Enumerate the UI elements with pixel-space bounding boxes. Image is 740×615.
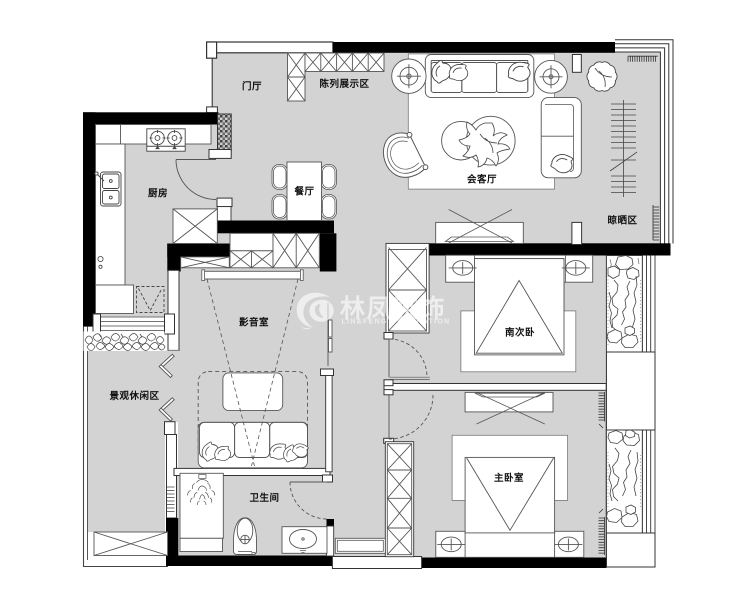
svg-text:景观休闲区: 景观休闲区 (108, 390, 159, 402)
svg-text:门厅: 门厅 (242, 81, 262, 93)
svg-text:会客厅: 会客厅 (467, 174, 497, 186)
svg-text:餐厅: 餐厅 (293, 186, 314, 198)
svg-text:厨房: 厨房 (148, 188, 168, 200)
svg-text:主卧室: 主卧室 (494, 472, 524, 484)
svg-text:LIN&FENG DECORATION: LIN&FENG DECORATION (342, 319, 451, 326)
svg-text:陈列展示区: 陈列展示区 (319, 78, 369, 90)
svg-text:卫生间: 卫生间 (249, 492, 279, 504)
svg-text:影音室: 影音室 (239, 317, 269, 329)
svg-text:南次卧: 南次卧 (505, 327, 535, 339)
svg-text:晾晒区: 晾晒区 (607, 215, 637, 227)
